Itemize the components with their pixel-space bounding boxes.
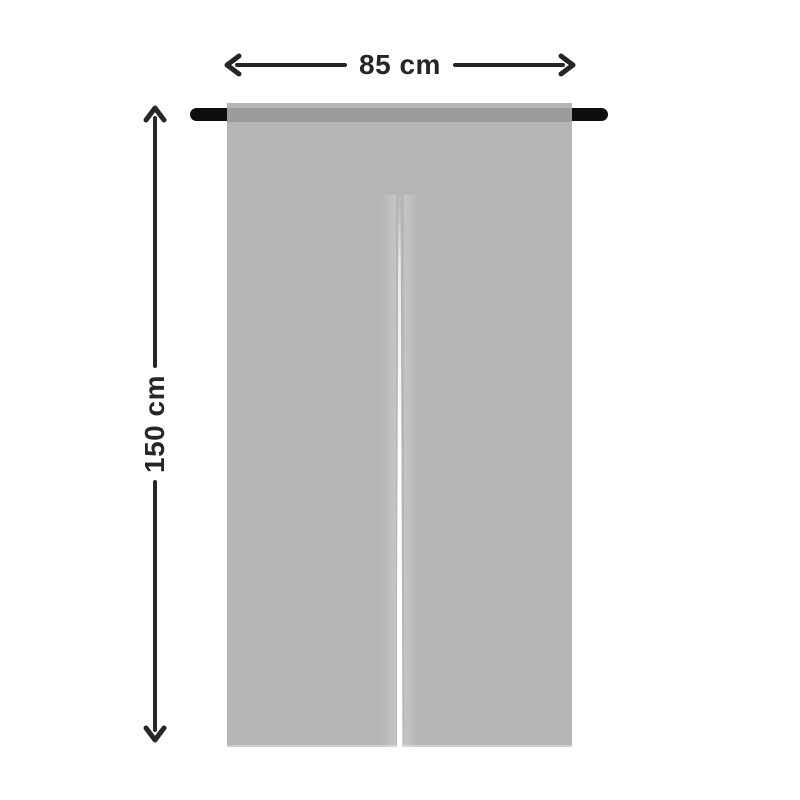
width-label: 85 cm — [359, 51, 441, 79]
height-dimension-line-top — [153, 116, 157, 368]
curtain-dimension-diagram: 85 cm 150 cm — [0, 0, 800, 800]
curtain — [227, 103, 572, 747]
curtain-fold-highlight-left — [381, 195, 396, 747]
width-dimension-line-right — [453, 63, 565, 67]
height-dimension-line-bottom — [153, 480, 157, 732]
height-dimension: 150 cm — [141, 103, 169, 745]
curtain-bottom-hem — [227, 745, 572, 747]
curtain-center-split — [397, 195, 403, 747]
height-label-wrap: 150 cm — [141, 368, 169, 480]
rod-pocket-band — [227, 108, 572, 122]
height-label: 150 cm — [141, 375, 169, 473]
arrow-right-icon — [556, 52, 578, 78]
width-dimension-line-left — [235, 63, 347, 67]
width-dimension: 85 cm — [222, 51, 578, 79]
curtain-fold-highlight-right — [404, 195, 419, 747]
arrow-down-icon — [142, 723, 168, 745]
